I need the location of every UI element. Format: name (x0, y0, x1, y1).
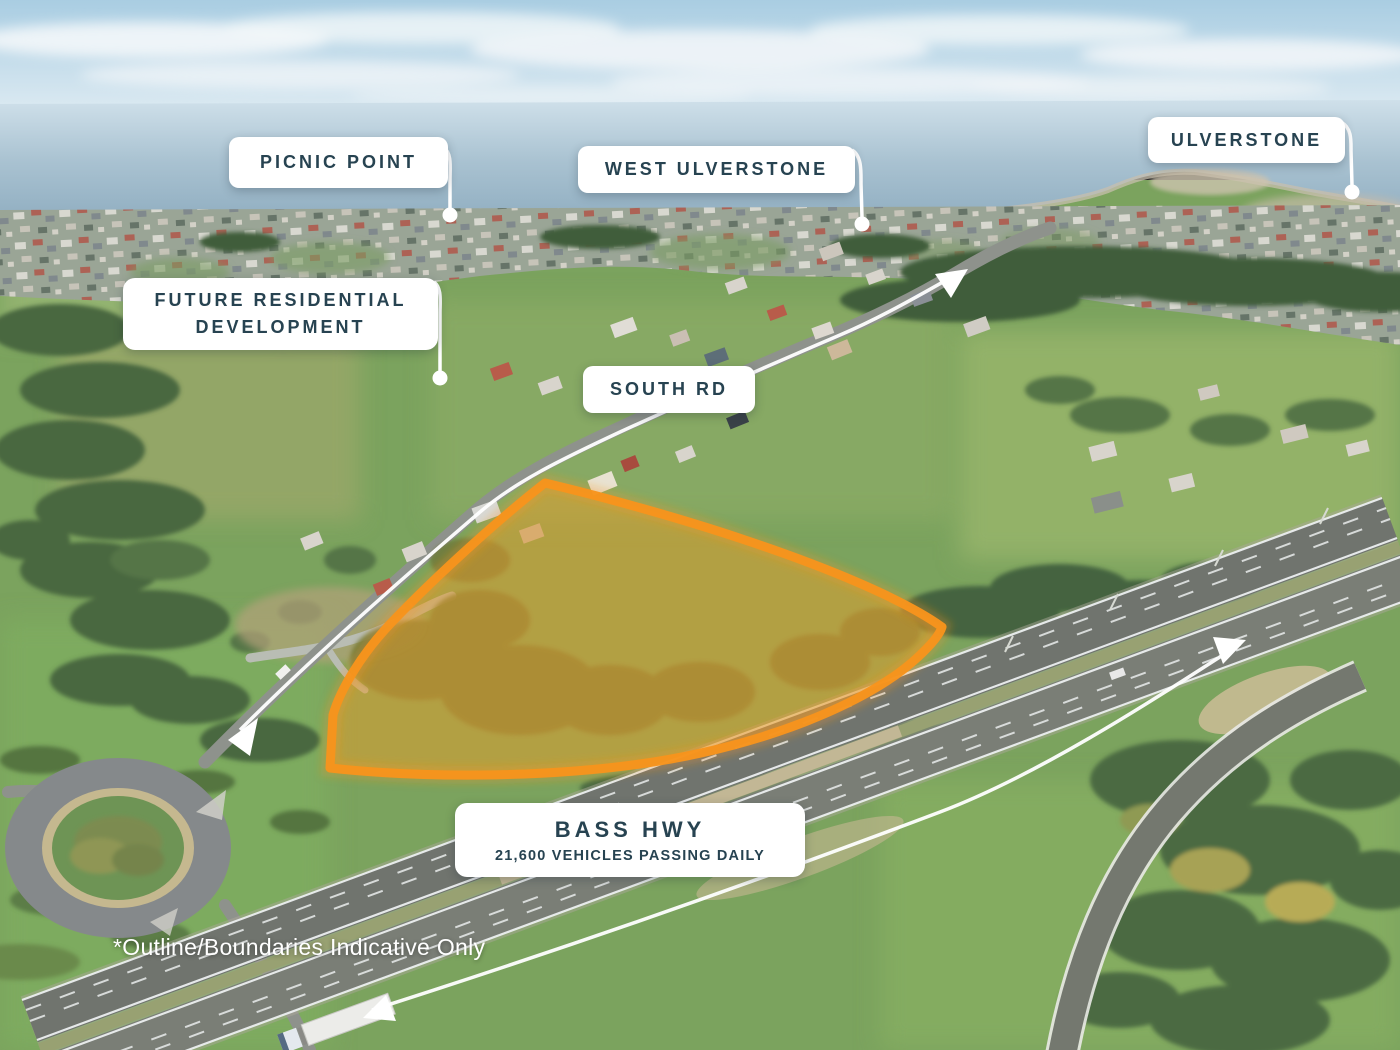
callout-bass-hwy: BASS HWY 21,600 VEHICLES PASSING DAILY (455, 803, 805, 877)
callout-label: WEST ULVERSTONE (605, 159, 828, 180)
callout-label-line1: FUTURE RESIDENTIAL (155, 287, 407, 314)
callout-label: SOUTH RD (610, 379, 728, 400)
callout-title: BASS HWY (555, 817, 706, 843)
callout-subtitle: 21,600 VEHICLES PASSING DAILY (495, 848, 765, 864)
callout-future-residential-development: FUTURE RESIDENTIAL DEVELOPMENT (123, 278, 438, 350)
callout-picnic-point: PICNIC POINT (229, 137, 448, 188)
callout-ulverstone: ULVERSTONE (1148, 117, 1345, 163)
callout-south-rd: SOUTH RD (583, 366, 755, 413)
boundaries-disclaimer: *Outline/Boundaries Indicative Only (113, 934, 485, 961)
sky (0, 0, 1400, 112)
aerial-property-marketing-image: PICNIC POINT WEST ULVERSTONE ULVERSTONE … (0, 0, 1400, 1050)
callout-west-ulverstone: WEST ULVERSTONE (578, 146, 855, 193)
callout-label-line2: DEVELOPMENT (195, 314, 365, 341)
callout-label: PICNIC POINT (260, 152, 417, 173)
roundabout (5, 758, 231, 938)
callout-label: ULVERSTONE (1171, 130, 1322, 151)
